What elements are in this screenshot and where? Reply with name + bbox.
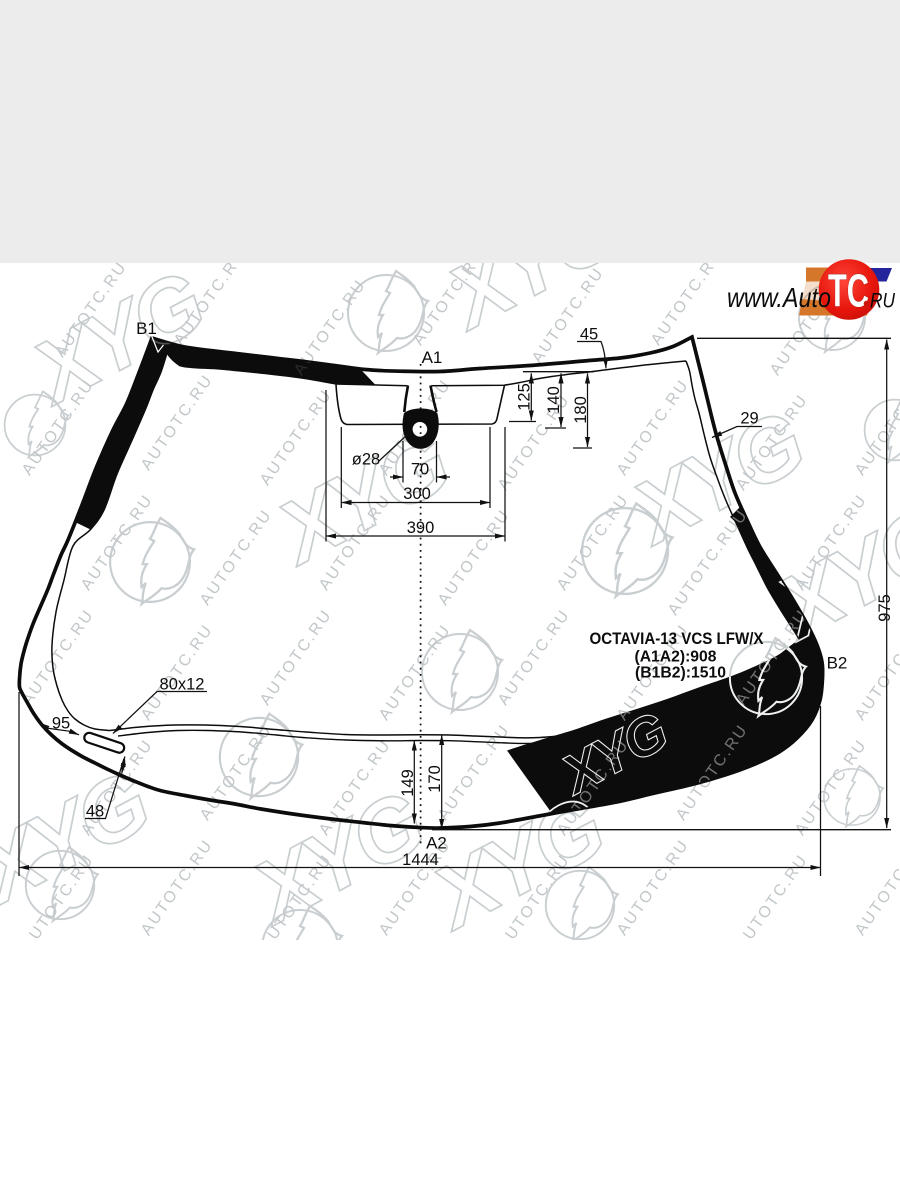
- svg-text:(A1A2):908: (A1A2):908: [635, 649, 717, 666]
- svg-text:1444: 1444: [402, 851, 439, 869]
- svg-text:A2: A2: [426, 834, 447, 853]
- svg-text:390: 390: [407, 519, 435, 537]
- svg-text:A1: A1: [422, 348, 443, 367]
- svg-text:OCTAVIA-13 VCS LFW/X: OCTAVIA-13 VCS LFW/X: [590, 630, 764, 648]
- svg-text:ø28: ø28: [352, 451, 380, 469]
- svg-text:70: 70: [411, 461, 429, 479]
- svg-text:48: 48: [86, 803, 104, 821]
- svg-text:125: 125: [516, 383, 534, 411]
- svg-text:RU: RU: [870, 290, 896, 313]
- svg-text:B2: B2: [827, 654, 848, 673]
- svg-text:B1: B1: [136, 319, 157, 338]
- svg-text:www.Auto: www.Auto: [727, 282, 831, 313]
- svg-text:180: 180: [572, 396, 590, 424]
- svg-text:975: 975: [876, 594, 894, 622]
- svg-text:140: 140: [545, 386, 563, 414]
- svg-text:45: 45: [580, 326, 598, 344]
- svg-text:TC: TC: [828, 265, 869, 317]
- svg-text:95: 95: [52, 715, 70, 733]
- svg-text:149: 149: [399, 769, 417, 797]
- svg-text:29: 29: [740, 410, 758, 428]
- svg-text:80x12: 80x12: [160, 676, 205, 694]
- svg-text:(B1B2):1510: (B1B2):1510: [635, 665, 726, 682]
- svg-text:300: 300: [403, 485, 431, 503]
- svg-text:170: 170: [426, 765, 444, 793]
